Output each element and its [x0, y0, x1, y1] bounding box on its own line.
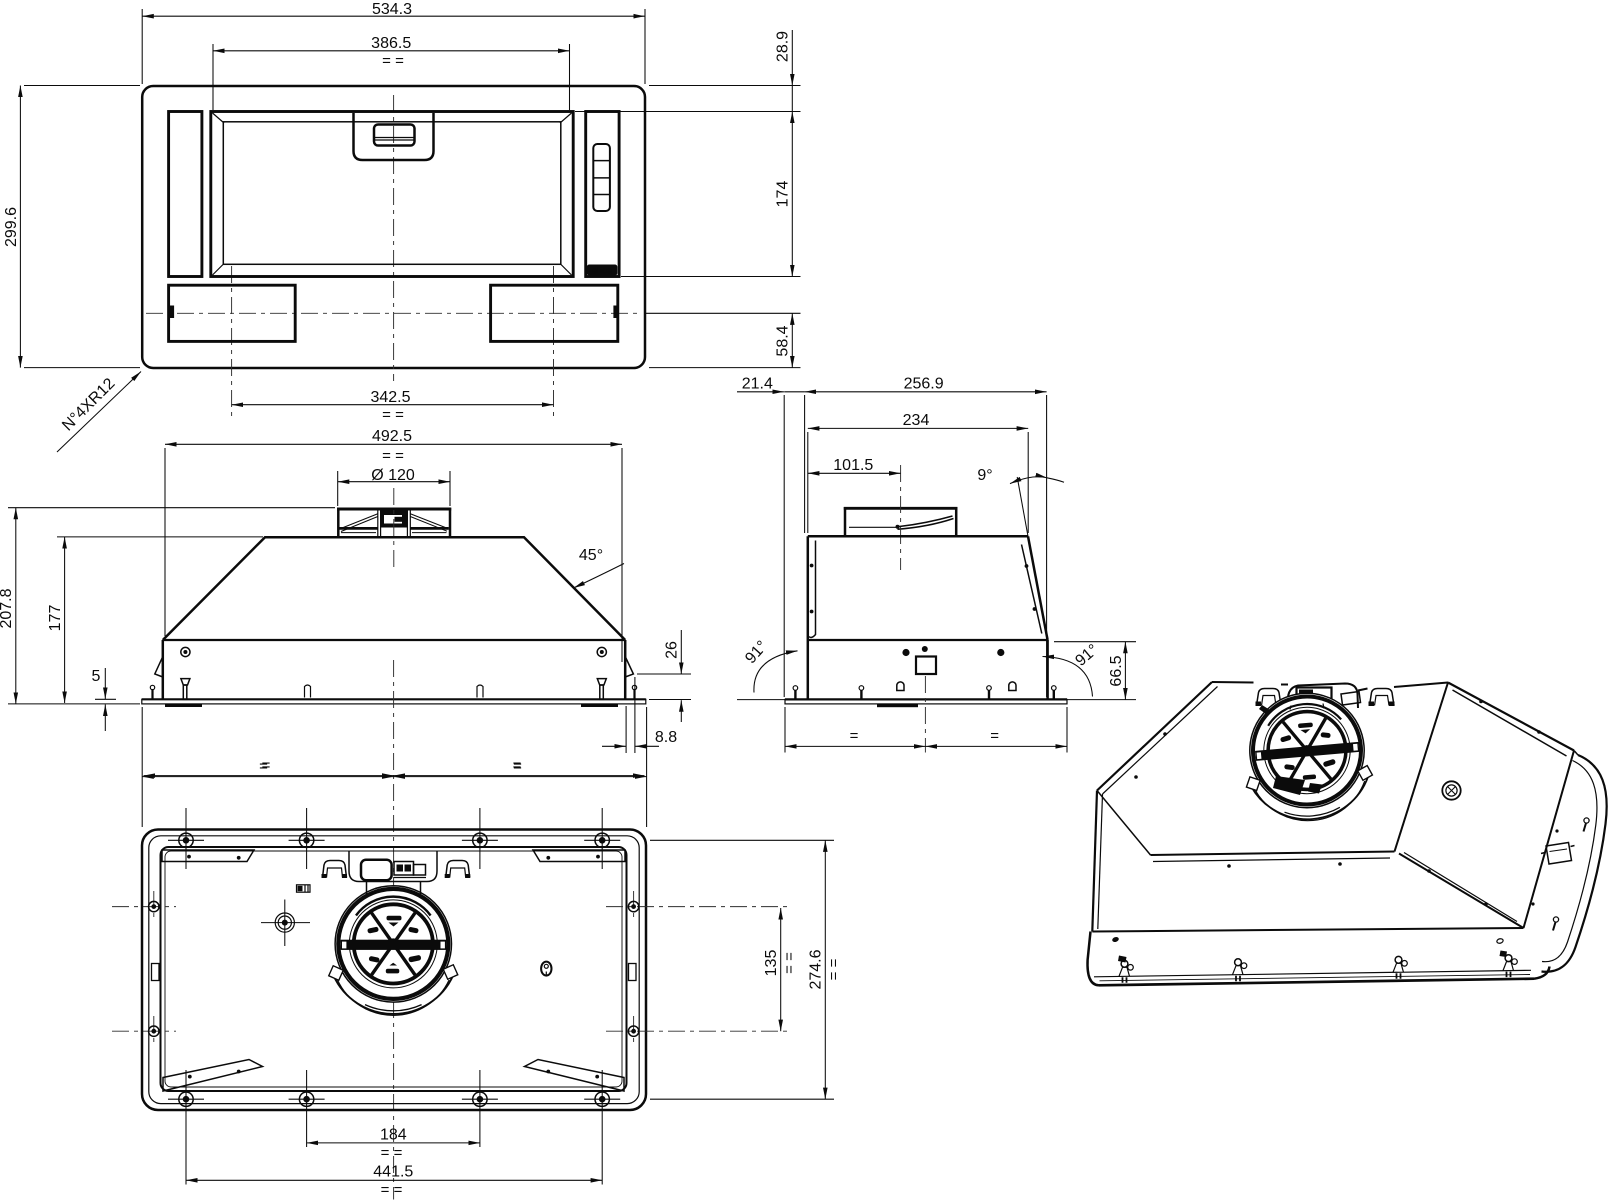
svg-text:9°: 9° — [977, 467, 992, 484]
svg-text:66.5: 66.5 — [1108, 655, 1125, 686]
svg-text:= =: = = — [382, 53, 404, 70]
svg-text:= =: = = — [381, 1145, 403, 1162]
svg-text:5: 5 — [92, 668, 101, 685]
svg-text:492.5: 492.5 — [372, 428, 412, 445]
svg-text:207.8: 207.8 — [0, 588, 15, 628]
svg-text:58.4: 58.4 — [775, 325, 792, 356]
svg-text:=: = — [990, 728, 999, 745]
svg-text:=: = — [513, 757, 522, 774]
svg-text:177: 177 — [47, 605, 64, 632]
svg-text:101.5: 101.5 — [833, 457, 873, 474]
svg-text:=: = — [262, 757, 271, 774]
svg-text:299.6: 299.6 — [3, 207, 20, 247]
svg-text:=: = — [850, 728, 859, 745]
svg-text:256.9: 256.9 — [904, 376, 944, 393]
svg-text:Ø 120: Ø 120 — [371, 467, 415, 484]
svg-text:534.3: 534.3 — [372, 1, 412, 18]
svg-text:= =: = = — [382, 448, 404, 465]
svg-text:135: 135 — [763, 950, 780, 977]
svg-text:= =: = = — [382, 407, 404, 424]
svg-text:= =: = = — [781, 952, 798, 974]
svg-text:174: 174 — [775, 181, 792, 208]
svg-text:386.5: 386.5 — [371, 35, 411, 52]
svg-text:441.5: 441.5 — [373, 1164, 413, 1181]
svg-text:28.9: 28.9 — [775, 31, 792, 62]
svg-text:234: 234 — [903, 412, 930, 429]
svg-text:= =: = = — [826, 958, 843, 980]
svg-text:184: 184 — [380, 1126, 407, 1143]
svg-text:= =: = = — [381, 1182, 403, 1199]
svg-text:21.4: 21.4 — [742, 376, 773, 393]
svg-text:26: 26 — [664, 641, 681, 659]
svg-text:274.6: 274.6 — [808, 949, 825, 989]
svg-text:45°: 45° — [579, 547, 603, 564]
svg-text:8.8: 8.8 — [655, 729, 677, 746]
svg-text:elica: elica — [592, 265, 613, 275]
svg-text:342.5: 342.5 — [370, 389, 410, 406]
svg-text:N°4XR12: N°4XR12 — [59, 375, 118, 434]
